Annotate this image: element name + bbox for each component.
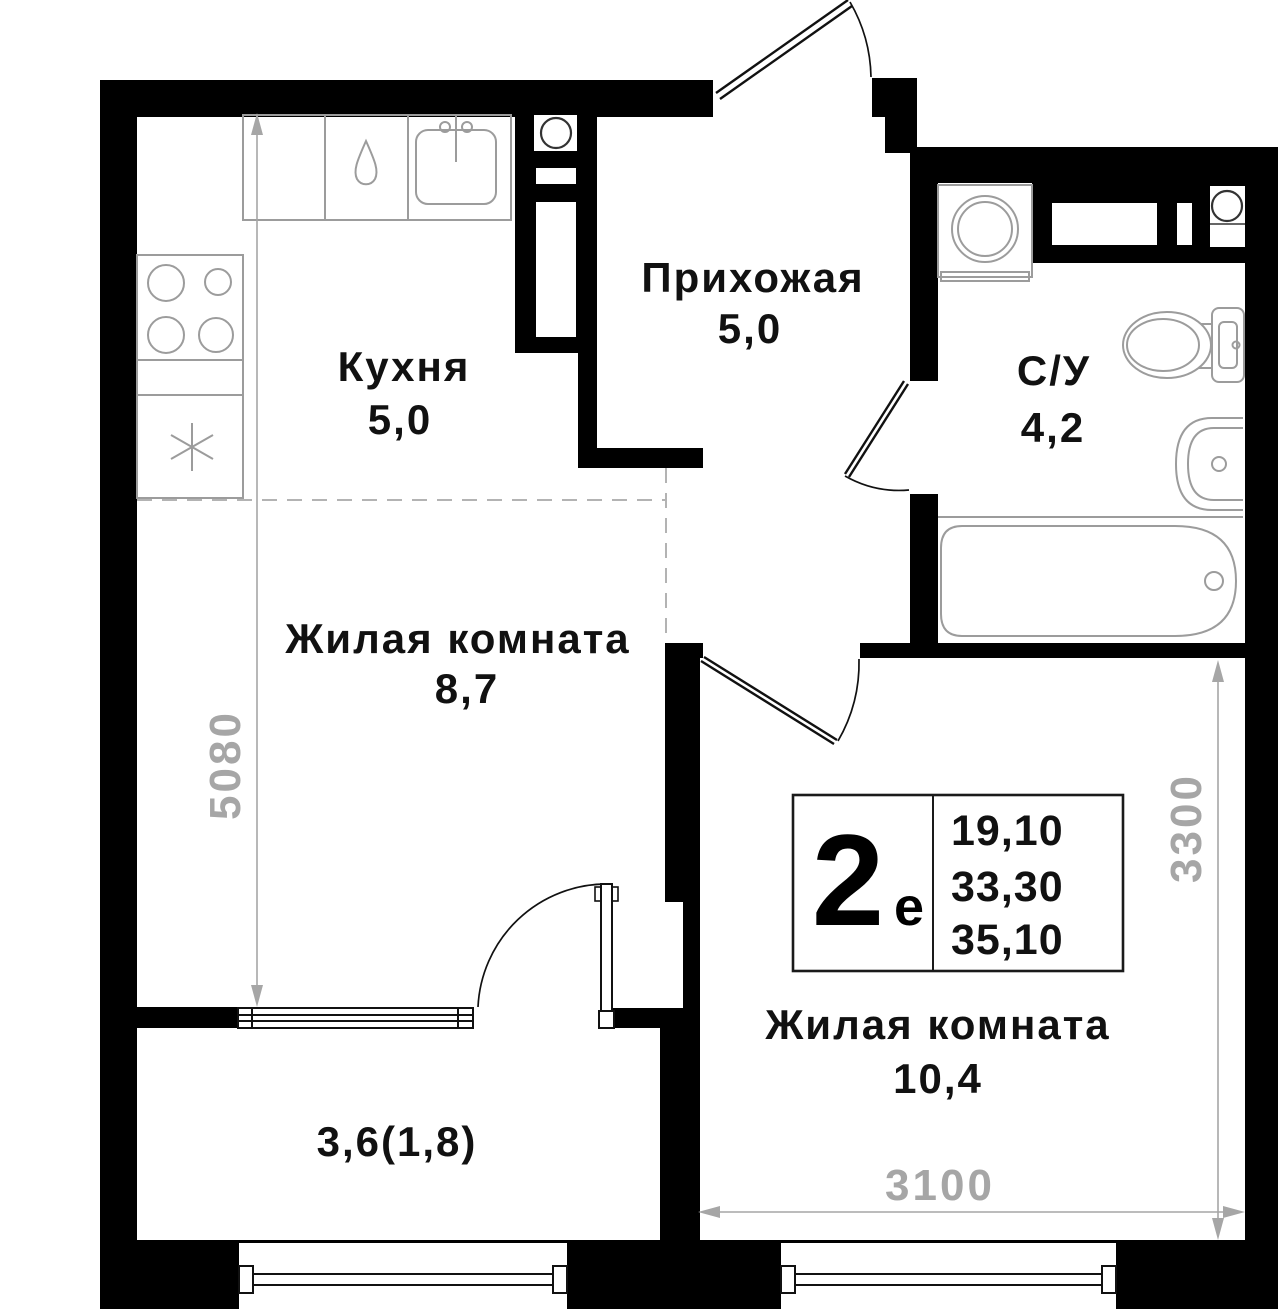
unit-info-card: 2 е 19,10 33,30 35,10 bbox=[793, 795, 1123, 971]
dim-left-arrow-bottom bbox=[251, 985, 263, 1007]
balcony-door bbox=[478, 884, 618, 1028]
bedroom-window-cap-left bbox=[781, 1266, 795, 1293]
bathroom-door-swing bbox=[845, 476, 909, 490]
balcony-area: 3,6(1,8) bbox=[317, 1118, 478, 1165]
dim-bottom-arrow-left bbox=[698, 1206, 720, 1218]
dim-bottom-arrow-right bbox=[1223, 1206, 1245, 1218]
burner-1 bbox=[148, 265, 184, 301]
wall-balconydoor-east bbox=[610, 1008, 700, 1028]
window-living-balcony bbox=[238, 1008, 473, 1028]
toilet-bowl-icon bbox=[1123, 312, 1211, 378]
bedroom-door-leaf bbox=[704, 657, 837, 740]
balcony-window-cap-right bbox=[553, 1266, 567, 1293]
kitchen-area: 5,0 bbox=[368, 396, 432, 443]
floor-plan: 5080 3300 3100 Кухня 5,0 Прихожая 5,0 С/… bbox=[0, 0, 1280, 1309]
wall-right-outer bbox=[1245, 183, 1278, 1240]
wall-bedroom-west-upper bbox=[665, 643, 700, 902]
wall-shaft-right bbox=[578, 108, 597, 468]
dimension-right: 3300 bbox=[1162, 660, 1224, 1240]
shelf-niche-small bbox=[1177, 203, 1192, 245]
wall-entrance-jamb bbox=[872, 78, 917, 117]
balcony-door-swing bbox=[478, 884, 607, 1007]
bathroom-area: 4,2 bbox=[1021, 404, 1085, 451]
wall-top-outer bbox=[100, 80, 713, 117]
dimension-left: 5080 bbox=[201, 113, 263, 1007]
burner-3 bbox=[148, 317, 184, 353]
balcony-window-cap-left bbox=[239, 1266, 253, 1293]
bathroom-door-leaf bbox=[845, 381, 904, 474]
entrance-door-leaf-2 bbox=[720, 6, 852, 99]
entrance-door-leaf bbox=[716, 0, 848, 93]
bathroom-label: С/У bbox=[1017, 347, 1091, 394]
living-second-area: 10,4 bbox=[893, 1055, 983, 1102]
burner-2 bbox=[205, 269, 231, 295]
dim-bottom-label: 3100 bbox=[885, 1161, 995, 1210]
bedroom-door-leaf-2 bbox=[701, 661, 834, 744]
entrance-door bbox=[716, 0, 871, 99]
dim-right-arrow-top bbox=[1212, 660, 1224, 682]
bedroom-door-swing bbox=[838, 659, 859, 741]
duct-shaft bbox=[534, 115, 577, 337]
counter-gap bbox=[137, 360, 243, 395]
living-main-label: Жилая комната bbox=[284, 615, 630, 662]
wall-hallway-bottom-left bbox=[597, 448, 703, 468]
wall-bathroom-top bbox=[910, 147, 1278, 183]
unit-area-living: 19,10 bbox=[951, 807, 1064, 855]
shaft-slot-small bbox=[536, 168, 576, 184]
kitchen-counter bbox=[137, 115, 511, 498]
unit-rooms-count: 2 bbox=[812, 807, 884, 953]
bedroom-door bbox=[701, 657, 859, 744]
wall-balcony-divider bbox=[660, 1028, 700, 1240]
bathtub-drain bbox=[1205, 572, 1223, 590]
dim-left-label: 5080 bbox=[201, 710, 250, 820]
wall-bathroom-left-upper bbox=[910, 183, 938, 381]
burner-4 bbox=[199, 318, 233, 352]
bathroom-door bbox=[845, 381, 909, 490]
bathtub-icon bbox=[941, 526, 1236, 636]
shelf-niche bbox=[1052, 203, 1157, 245]
unit-area-main: 33,30 bbox=[951, 863, 1064, 911]
bathroom-door-leaf-2 bbox=[849, 384, 908, 477]
bathroom-sink-icon bbox=[1176, 418, 1243, 510]
window-balcony-exterior bbox=[239, 1243, 567, 1309]
wall-livingwindow-west bbox=[100, 1007, 238, 1028]
wall-shaft-left bbox=[515, 108, 533, 353]
floor-plan-canvas: 5080 3300 3100 Кухня 5,0 Прихожая 5,0 С/… bbox=[0, 0, 1280, 1309]
water-drop-icon bbox=[355, 141, 376, 184]
window-bedroom-exterior bbox=[781, 1243, 1116, 1309]
living-main-area: 8,7 bbox=[435, 665, 499, 712]
hallway-area: 5,0 bbox=[718, 305, 782, 352]
wall-left-outer bbox=[100, 80, 137, 1240]
shaft-slot-large bbox=[536, 202, 576, 337]
wall-bedroom-west-mid bbox=[683, 902, 700, 1008]
dimension-bottom: 3100 bbox=[698, 1161, 1245, 1218]
wall-bedroom-top bbox=[860, 643, 1245, 658]
dim-right-label: 3300 bbox=[1162, 773, 1211, 883]
kitchen-label: Кухня bbox=[338, 343, 471, 390]
bedroom-window-cap-right bbox=[1102, 1266, 1116, 1293]
balcony-door-threshold bbox=[599, 1011, 614, 1028]
snowflake-icon bbox=[171, 423, 213, 471]
balcony-door-leaf bbox=[601, 884, 612, 1013]
unit-rooms-suffix: е bbox=[894, 877, 924, 937]
dim-right-arrow-bottom bbox=[1212, 1218, 1224, 1240]
living-second-label: Жилая комната bbox=[764, 1001, 1110, 1048]
wall-bathroom-left-lower bbox=[910, 494, 938, 643]
unit-area-total: 35,10 bbox=[951, 916, 1064, 964]
entrance-door-swing bbox=[850, 2, 871, 77]
hallway-label: Прихожая bbox=[641, 254, 864, 301]
balcony-window-bay bbox=[239, 1243, 567, 1309]
bedroom-window-bay bbox=[781, 1243, 1116, 1309]
living-window-frame bbox=[238, 1008, 473, 1028]
